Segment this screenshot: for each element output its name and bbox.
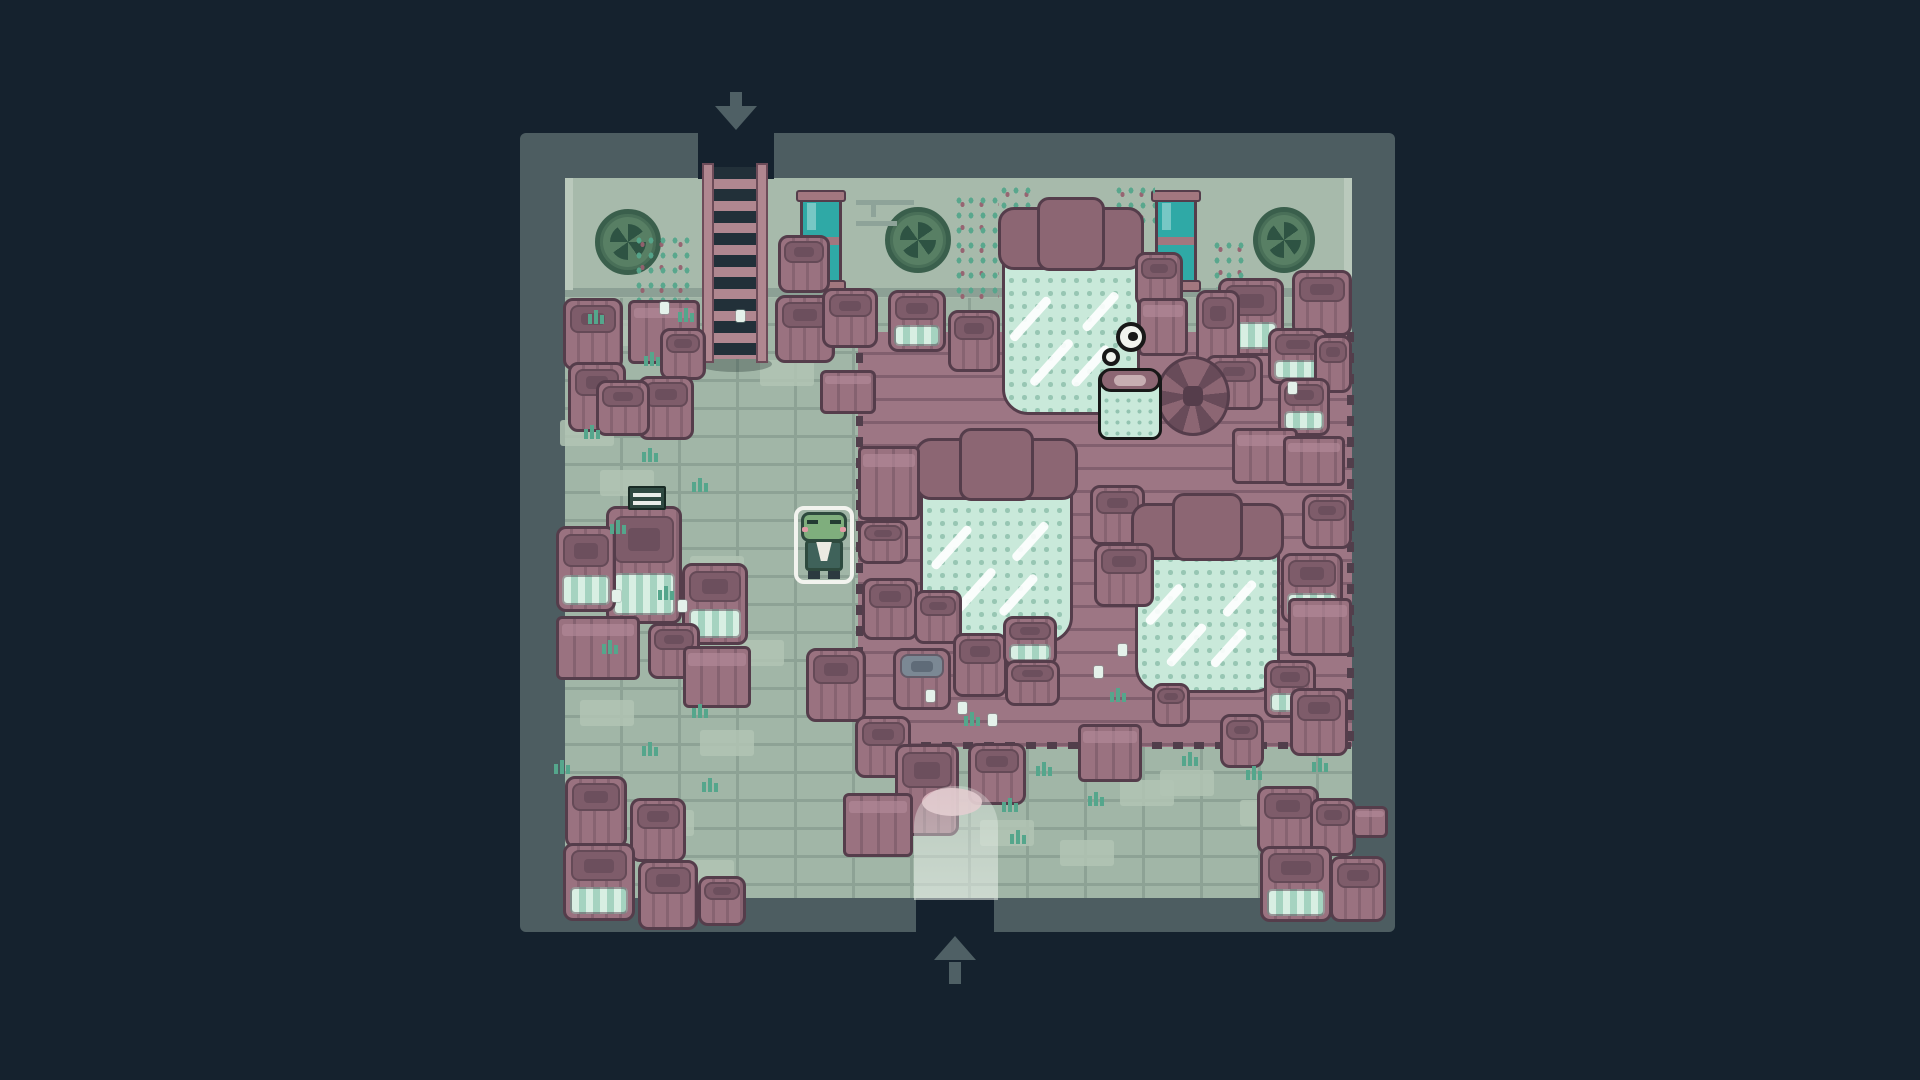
- grass-blade: [1022, 835, 1026, 844]
- wall-corner-highlight: [565, 178, 573, 290]
- grass-blade: [1246, 770, 1250, 780]
- grass-tuft: [962, 712, 982, 728]
- barrel-lid: [975, 749, 1020, 773]
- sparkle-icon: [926, 690, 935, 702]
- grass-tuft: [642, 352, 662, 368]
- grass-blade: [708, 778, 712, 792]
- grass-blade: [702, 782, 706, 792]
- storage-vat: [1135, 493, 1280, 693]
- light-beam: [914, 786, 998, 900]
- storage-barrel: [822, 288, 878, 348]
- grass-blade: [610, 524, 614, 534]
- sparkle-icon: [958, 702, 967, 714]
- open-barrel: [888, 290, 946, 352]
- barrel-lid-inner: [1022, 670, 1043, 677]
- shine-icon: [1221, 579, 1258, 618]
- grass-blade: [1324, 763, 1328, 772]
- exit-arrow-down-icon[interactable]: [715, 92, 757, 136]
- barrel-lid-inner: [929, 602, 947, 611]
- grass-blade: [1312, 762, 1316, 772]
- barrel-lid: [1308, 500, 1346, 521]
- sparkle-icon: [678, 600, 687, 612]
- fermenting-pot[interactable]: [1098, 370, 1162, 440]
- barrel-lid-inner: [914, 762, 940, 779]
- barrel-lid-inner: [1276, 800, 1301, 812]
- barrel-lid: [666, 334, 700, 353]
- vat-lid: [998, 197, 1144, 271]
- barrel-lid: [1270, 666, 1310, 688]
- storage-barrel: [1290, 688, 1348, 756]
- storage-barrel: [1302, 494, 1352, 549]
- barrel-lid-inner: [1223, 367, 1246, 376]
- grass-blade: [664, 586, 668, 600]
- ladder-rungs: [712, 167, 758, 359]
- storage-barrel: [596, 380, 650, 436]
- grass-blade: [656, 357, 660, 366]
- barrel-lid: [959, 639, 1000, 663]
- shine-icon: [1166, 622, 1209, 668]
- grass-blade: [594, 310, 598, 324]
- grass-blade: [1014, 803, 1018, 812]
- grass-blade: [1252, 766, 1256, 780]
- grass-blade: [560, 760, 564, 774]
- floor-patch: [1060, 840, 1114, 866]
- barrel-lid: [920, 596, 956, 616]
- player-eye: [807, 520, 818, 524]
- crate-lid: [1293, 605, 1346, 616]
- shelf-board: [856, 200, 914, 205]
- player-cheek: [802, 527, 808, 532]
- barrel-lid: [571, 850, 628, 880]
- grass-tuft: [582, 425, 602, 441]
- shine-icon: [1011, 520, 1050, 562]
- grass-blade: [704, 709, 708, 718]
- sparkle-icon: [988, 714, 997, 726]
- shine-icon: [1081, 291, 1121, 334]
- grass-blade: [642, 452, 646, 462]
- grass-blade: [704, 483, 708, 492]
- grass-blade: [690, 313, 694, 322]
- grass-blade: [602, 644, 606, 654]
- barrel-lid-inner: [874, 530, 893, 536]
- storage-barrel: [630, 798, 686, 862]
- barrel-lid: [563, 534, 609, 568]
- grass-blade: [714, 783, 718, 792]
- barrel-top: [1156, 356, 1230, 436]
- hanging-vine: [633, 233, 691, 301]
- storage-barrel: [1152, 683, 1190, 727]
- crate-lid: [1288, 443, 1340, 453]
- barrel-lid: [645, 867, 691, 894]
- storage-barrel: [862, 578, 918, 640]
- grass-blade: [684, 308, 688, 322]
- barrel-contents: [894, 325, 940, 346]
- player-leg: [808, 571, 820, 579]
- arrow-stem: [949, 962, 961, 984]
- barrel-lid-inner: [906, 303, 929, 314]
- grass-tuft: [1008, 830, 1028, 846]
- grass-tuft: [1310, 758, 1330, 774]
- barrel-lid: [645, 382, 688, 406]
- barrel-lid: [862, 722, 905, 746]
- barrel-lid: [1264, 793, 1312, 819]
- shine-icon: [1029, 338, 1075, 388]
- barrel-lid: [602, 386, 643, 407]
- storage-chest: [858, 446, 920, 520]
- grass-blade: [616, 520, 620, 534]
- grass-blade: [1002, 802, 1006, 812]
- crate-lid: [1356, 811, 1384, 817]
- grass-blade: [654, 747, 658, 756]
- grass-tuft: [1034, 762, 1054, 778]
- open-barrel: [563, 843, 635, 921]
- barrel-lid-inner: [613, 392, 634, 401]
- grass-blade: [1318, 758, 1322, 772]
- barrel-lid-inner: [647, 811, 669, 822]
- barrel-lid: [900, 654, 945, 678]
- grass-tuft: [656, 586, 676, 602]
- barrel-lid: [1141, 258, 1177, 279]
- grass-blade: [644, 356, 648, 366]
- barrel-lid-inner: [1210, 306, 1226, 321]
- barrel-lid-inner: [964, 323, 984, 334]
- barrel-lid: [954, 316, 994, 340]
- barrel-lid: [1299, 277, 1345, 302]
- barrel-lid-inner: [584, 791, 609, 804]
- vat-lid-lobe: [1037, 197, 1104, 271]
- crate-lid: [688, 653, 745, 665]
- barrel-lid-inner: [1107, 498, 1128, 508]
- storage-barrel: [1094, 543, 1154, 607]
- barrel-lid-inner: [1300, 567, 1325, 579]
- storage-barrel: [806, 648, 866, 722]
- grass-tuft: [600, 640, 620, 656]
- grass-tuft: [1108, 688, 1128, 704]
- bubble-icon: [1116, 322, 1146, 352]
- grass-blade: [622, 525, 626, 534]
- grass-blade: [650, 352, 654, 366]
- sparkle-icon: [1094, 666, 1103, 678]
- barrel-lid: [784, 241, 824, 263]
- shine-icon: [929, 524, 972, 571]
- barrel-lid-inner: [702, 579, 729, 594]
- storage-barrel: [858, 520, 908, 564]
- window-bar: [1158, 237, 1194, 244]
- exit-arrow-up-icon[interactable]: [934, 936, 976, 984]
- player-eye: [830, 520, 841, 524]
- bubble-core: [1128, 332, 1137, 340]
- bubble-icon: [1102, 348, 1120, 366]
- vent-fan-icon: [900, 222, 936, 258]
- storage-barrel: [1220, 714, 1264, 768]
- barrel-lid-inner: [986, 756, 1009, 767]
- barrel-lid-inner: [674, 339, 691, 347]
- wooden-crate: [556, 616, 640, 680]
- barrel-lid: [1288, 560, 1336, 587]
- grass-blade: [590, 425, 594, 439]
- floor-patch: [1120, 780, 1174, 806]
- barrel-lid-inner: [970, 646, 991, 657]
- storage-barrel: [638, 860, 698, 930]
- crate-lid: [825, 376, 871, 384]
- grass-blade: [648, 448, 652, 462]
- grass-blade: [642, 746, 646, 756]
- grass-blade: [1122, 693, 1126, 702]
- bottom-doorway[interactable]: [916, 898, 994, 934]
- grass-blade: [964, 716, 968, 726]
- barrel-lid: [1319, 341, 1347, 363]
- barrel-lid-inner: [656, 874, 680, 886]
- barrel-lid-inner: [1020, 627, 1041, 635]
- grass-tuft: [1180, 752, 1200, 768]
- grass-tuft: [552, 760, 572, 776]
- barrel-lid-inner: [1324, 810, 1341, 820]
- barrel-lid-inner: [1326, 347, 1339, 357]
- storage-barrel: [698, 876, 746, 926]
- barrel-lid-inner: [1310, 284, 1334, 295]
- vat-lid-lobe: [1172, 493, 1243, 561]
- storage-barrel: [778, 235, 830, 293]
- barrel-contents: [1009, 644, 1051, 661]
- arrow-head: [715, 106, 757, 130]
- wooden-crate: [843, 793, 913, 857]
- gray-lid-barrel: [893, 648, 951, 710]
- grass-blade: [1048, 767, 1052, 776]
- barrel-contents: [562, 575, 610, 605]
- barrel-lid: [1202, 297, 1235, 328]
- wooden-crate: [683, 646, 751, 708]
- shine-icon: [998, 572, 1039, 616]
- grass-tuft: [690, 478, 710, 494]
- storage-barrel: [1005, 660, 1060, 706]
- shine-icon: [1209, 627, 1248, 669]
- paper-stack: [628, 486, 666, 510]
- floor-patch: [700, 730, 754, 756]
- barrel-bung: [1183, 386, 1202, 407]
- pot-rim-inner: [1114, 375, 1145, 386]
- floor-patch: [580, 700, 634, 726]
- grass-blade: [554, 764, 558, 774]
- barrel-lid: [572, 783, 620, 811]
- barrel-lid-inner: [1281, 861, 1311, 875]
- barrel-lid-inner: [1164, 693, 1177, 699]
- crate-lid: [562, 624, 634, 637]
- barrel-lid-inner: [1294, 390, 1314, 400]
- storage-barrel: [565, 776, 627, 848]
- grass-blade: [692, 482, 696, 492]
- barrel-lid: [1316, 804, 1350, 826]
- grass-blade: [608, 640, 612, 654]
- barrel-lid: [902, 752, 952, 788]
- crate-lid: [1143, 305, 1184, 316]
- grass-tuft: [676, 308, 696, 324]
- grass-tuft: [586, 310, 606, 326]
- player-cheek: [840, 527, 846, 532]
- barrel-lid-inner: [793, 309, 817, 321]
- crate-lid: [1083, 731, 1136, 742]
- barrel-lid-inner: [628, 528, 660, 551]
- barrel-lid: [637, 804, 680, 828]
- storage-barrel: [1292, 270, 1352, 336]
- grass-tuft: [700, 778, 720, 794]
- barrel-lid-inner: [584, 859, 614, 873]
- barrel-lid-inner: [1347, 870, 1369, 881]
- wooden-crate: [1138, 298, 1188, 356]
- barrel-lid: [1157, 688, 1185, 704]
- barrel-lid-inner: [664, 635, 684, 644]
- vat-lid-lobe: [959, 428, 1034, 501]
- barrel-lid: [864, 525, 902, 541]
- barrel-lid-inner: [1280, 672, 1300, 682]
- barrel-lid-inner: [839, 301, 861, 311]
- grass-blade: [1188, 752, 1192, 766]
- grass-blade: [698, 704, 702, 718]
- crate-lid: [863, 454, 915, 466]
- grass-blade: [1100, 797, 1104, 806]
- ladder[interactable]: [702, 163, 768, 363]
- grass-blade: [1008, 798, 1012, 812]
- game-viewport: [0, 0, 1920, 1080]
- grass-blade: [1042, 762, 1046, 776]
- wooden-crate: [820, 370, 876, 414]
- barrel-lid-inner: [879, 591, 901, 602]
- grass-blade: [658, 590, 662, 600]
- grass-blade: [1094, 792, 1098, 806]
- storage-barrel: [948, 310, 1000, 372]
- grass-blade: [678, 312, 682, 322]
- grass-blade: [584, 429, 588, 439]
- barrel-lid-inner: [824, 663, 848, 676]
- hanging-vine: [953, 193, 999, 301]
- open-barrel: [1003, 616, 1057, 666]
- player-character[interactable]: [794, 506, 854, 584]
- grass-tuft: [640, 742, 660, 758]
- barrel-lid: [1226, 720, 1259, 740]
- grass-blade: [1110, 692, 1114, 702]
- barrel-lid-inner: [1238, 294, 1265, 308]
- wall-shelf: [856, 200, 914, 226]
- wooden-crate: [1078, 724, 1142, 782]
- barrel-lid-inner: [574, 543, 598, 559]
- grass-tuft: [1000, 798, 1020, 814]
- barrel-lid: [895, 296, 940, 320]
- open-barrel: [1260, 846, 1332, 922]
- grass-tuft: [1244, 766, 1264, 782]
- shelf-bracket: [871, 205, 876, 217]
- grass-blade: [654, 453, 658, 462]
- player-leg: [828, 571, 840, 579]
- barrel-lid: [1101, 549, 1147, 573]
- barrel-lid-inner: [872, 729, 894, 740]
- barrel-lid: [869, 584, 912, 608]
- pot-rim: [1099, 368, 1160, 392]
- paper-stripe: [633, 501, 662, 505]
- grass-blade: [600, 315, 604, 324]
- barrel-lid-inner: [1308, 702, 1331, 714]
- grass-blade: [588, 314, 592, 324]
- window-frame: [1151, 190, 1201, 202]
- storage-barrel: [953, 633, 1007, 697]
- barrel-contents: [570, 887, 628, 914]
- sparkle-icon: [736, 310, 745, 322]
- grass-blade: [596, 430, 600, 439]
- barrel-lid-inner: [911, 661, 934, 672]
- shelf-board: [856, 221, 897, 226]
- wooden-crate: [1352, 806, 1388, 838]
- grass-blade: [1194, 757, 1198, 766]
- sparkle-icon: [1288, 382, 1297, 394]
- grass-blade: [698, 478, 702, 492]
- grass-blade: [1016, 830, 1020, 844]
- grass-blade: [976, 717, 980, 726]
- grass-blade: [648, 742, 652, 756]
- barrel-contents: [1267, 889, 1325, 916]
- window-frame: [796, 190, 846, 202]
- wooden-crate: [1288, 598, 1352, 656]
- grass-blade: [692, 708, 696, 718]
- grass-blade: [1258, 771, 1262, 780]
- barrel-lid: [1268, 853, 1325, 882]
- vent-fan-icon: [1267, 222, 1300, 258]
- grass-tuft: [1086, 792, 1106, 808]
- grass-tuft: [608, 520, 628, 536]
- wall-vent: [1253, 207, 1315, 273]
- grass-blade: [1010, 834, 1014, 844]
- sparkle-icon: [612, 590, 621, 602]
- paper-stripe: [633, 493, 662, 497]
- vat-lid: [915, 428, 1077, 501]
- grass-blade: [1036, 766, 1040, 776]
- shine-icon: [1009, 295, 1053, 342]
- grass-blade: [1116, 688, 1120, 702]
- barrel-lid: [813, 655, 859, 684]
- grass-blade: [970, 712, 974, 726]
- ladder-rail: [756, 163, 768, 363]
- window-highlight: [807, 203, 816, 230]
- storage-barrel: [563, 298, 623, 370]
- barrel-lid-inner: [1318, 506, 1337, 515]
- sparkle-icon: [1118, 644, 1127, 656]
- grass-blade: [670, 591, 674, 600]
- grass-blade: [1088, 796, 1092, 806]
- barrel-lid: [1009, 622, 1050, 640]
- barrel-lid: [1337, 863, 1380, 888]
- barrel-lid-inner: [794, 247, 814, 257]
- window-highlight: [1162, 203, 1171, 230]
- grass-blade: [566, 765, 570, 774]
- barrel-lid-inner: [655, 389, 677, 400]
- barrel-lid: [1011, 665, 1053, 682]
- wooden-crate: [1283, 436, 1345, 486]
- grass-blade: [1182, 756, 1186, 766]
- storage-barrel: [660, 328, 706, 380]
- barrel-lid-inner: [1150, 264, 1168, 273]
- barrel-lid: [689, 571, 741, 603]
- crate-lid: [849, 801, 908, 814]
- storage-barrel: [1330, 856, 1386, 922]
- grass-tuft: [640, 448, 660, 464]
- barrel-lid: [829, 294, 872, 317]
- barrel-lid-inner: [1234, 726, 1250, 735]
- barrel-lid-inner: [713, 887, 731, 895]
- open-barrel: [556, 526, 616, 612]
- arrow-head: [934, 936, 976, 960]
- barrel-lid: [704, 882, 740, 900]
- barrel-lid-inner: [1286, 340, 1310, 349]
- barrel-lid: [1297, 695, 1342, 721]
- barrel-lid-inner: [1112, 556, 1136, 567]
- grass-blade: [614, 645, 618, 654]
